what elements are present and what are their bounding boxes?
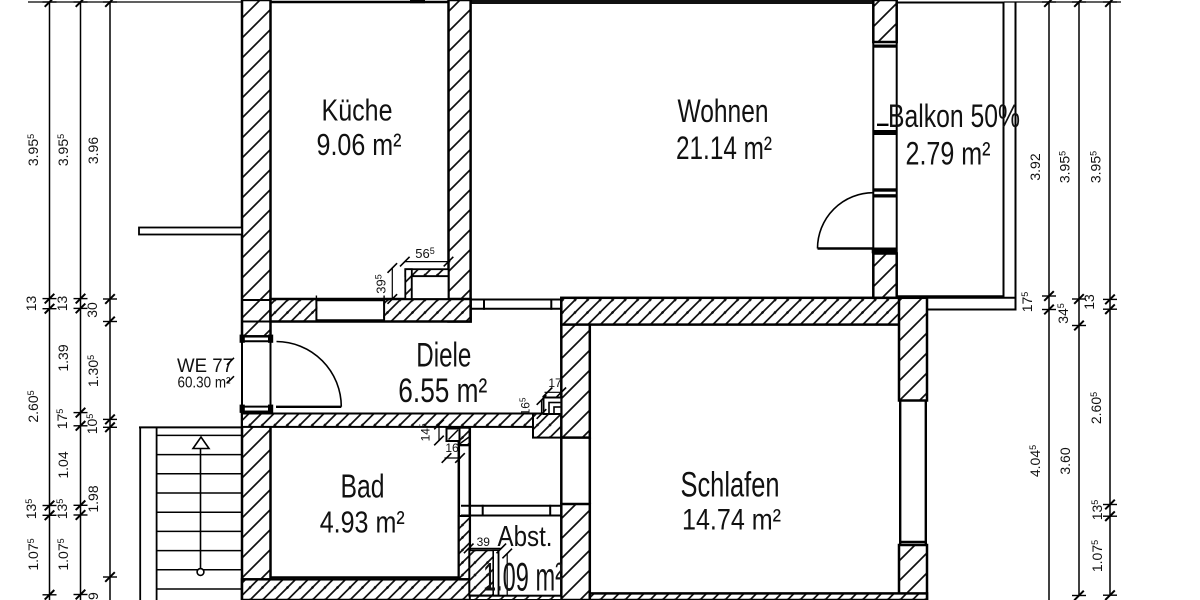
svg-text:1.39: 1.39: [55, 344, 71, 371]
svg-text:3.96: 3.96: [85, 137, 101, 164]
svg-text:60.30 m²: 60.30 m²: [178, 374, 231, 391]
svg-text:3.60: 3.60: [1057, 447, 1073, 474]
svg-text:39: 39: [477, 535, 491, 549]
svg-text:2.79 m²: 2.79 m²: [906, 136, 991, 172]
svg-text:Diele: Diele: [416, 336, 471, 374]
svg-text:4.93 m²: 4.93 m²: [320, 505, 405, 540]
svg-text:1.04: 1.04: [55, 451, 71, 478]
svg-text:3.92: 3.92: [1027, 153, 1043, 180]
svg-text:Schlafen: Schlafen: [681, 465, 780, 504]
svg-text:6.55 m²: 6.55 m²: [398, 372, 487, 410]
svg-text:Wohnen: Wohnen: [678, 93, 769, 129]
svg-text:13: 13: [23, 296, 39, 312]
svg-text:9.06 m²: 9.06 m²: [317, 127, 402, 162]
svg-text:17: 17: [548, 376, 562, 390]
svg-text:1.98: 1.98: [85, 485, 101, 512]
svg-text:1.09 m²: 1.09 m²: [483, 556, 563, 600]
svg-text:49: 49: [85, 592, 101, 600]
svg-text:13: 13: [54, 296, 70, 312]
svg-text:13: 13: [1081, 294, 1097, 310]
svg-text:14.74 m²: 14.74 m²: [682, 504, 781, 537]
svg-text:Balkon 50%: Balkon 50%: [888, 98, 1020, 134]
svg-text:Abst.: Abst.: [498, 521, 553, 553]
svg-text:Küche: Küche: [322, 93, 393, 128]
svg-text:Bad: Bad: [341, 468, 385, 505]
svg-text:16: 16: [445, 441, 459, 455]
svg-text:30: 30: [84, 302, 100, 318]
svg-text:21.14 m²: 21.14 m²: [676, 130, 772, 166]
